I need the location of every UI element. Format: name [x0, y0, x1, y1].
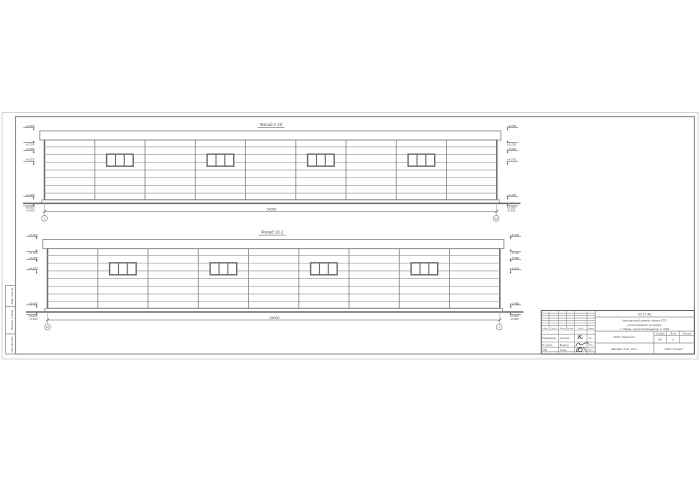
- svg-text:Дата: Дата: [587, 328, 594, 330]
- svg-text:3: 3: [672, 338, 674, 342]
- svg-text:10: 10: [46, 325, 50, 329]
- svg-text:07-17-АС: 07-17-АС: [638, 313, 653, 317]
- svg-text:Подпись и дата: Подпись и дата: [10, 310, 14, 331]
- svg-text:-0.450: -0.450: [26, 209, 35, 213]
- svg-text:06.17: 06.17: [588, 345, 594, 347]
- svg-text:ГИП: ГИП: [543, 350, 548, 352]
- svg-text:Стадия: Стадия: [656, 333, 666, 336]
- svg-text:АС: АС: [657, 338, 663, 342]
- svg-text:Кол.уч: Кол.уч: [551, 328, 558, 330]
- svg-text:Березин: Березин: [560, 345, 570, 347]
- svg-text:+5.720: +5.720: [28, 251, 37, 255]
- svg-text:Сизов: Сизов: [560, 350, 567, 352]
- svg-text:-0.450: -0.450: [510, 317, 519, 321]
- svg-text:54000: 54000: [270, 316, 280, 320]
- svg-text:ООО "Акрополь": ООО "Акрополь": [613, 335, 636, 339]
- svg-text:+5.720: +5.720: [510, 251, 519, 255]
- svg-text:г. Пермь, шоссе Космонавтов, д: г. Пермь, шоссе Космонавтов, д. 316А: [620, 327, 669, 331]
- svg-text:Подп.: Подп.: [578, 327, 584, 330]
- svg-text:Антонов: Антонов: [559, 337, 571, 340]
- svg-text:Н. контр.: Н. контр.: [543, 345, 554, 347]
- svg-text:Листов: Листов: [682, 333, 692, 336]
- svg-text:06.17: 06.17: [588, 350, 594, 352]
- svg-text:Разработал: Разработал: [543, 338, 557, 340]
- svg-text:+5.720: +5.720: [507, 143, 516, 147]
- svg-text:Лист: Лист: [559, 328, 566, 330]
- svg-text:10: 10: [495, 217, 499, 221]
- svg-text:Изм: Изм: [543, 328, 547, 330]
- svg-text:Фасады 1-10, 10-1.: Фасады 1-10, 10-1.: [611, 347, 638, 351]
- svg-text:расположенного по адресу:: расположенного по адресу:: [626, 323, 662, 327]
- svg-text:-0.450: -0.450: [29, 317, 38, 321]
- svg-text:№ док.: № док.: [567, 327, 574, 330]
- svg-text:Фасад 10-1: Фасад 10-1: [261, 230, 284, 235]
- svg-text:Фасад 1-10: Фасад 1-10: [260, 122, 283, 127]
- svg-text:Лист: Лист: [669, 333, 676, 336]
- svg-text:54000: 54000: [267, 208, 277, 212]
- svg-text:Капитальный ремонт здания СТО,: Капитальный ремонт здания СТО,: [622, 318, 667, 322]
- svg-text:Инв. № подл.: Инв. № подл.: [10, 335, 14, 352]
- svg-text:Взам. инв. №: Взам. инв. №: [10, 288, 14, 305]
- svg-text:+5.720: +5.720: [25, 143, 34, 147]
- svg-text:ООО "Альянс": ООО "Альянс": [664, 347, 684, 351]
- svg-text:06.17: 06.17: [588, 338, 594, 340]
- svg-text:-0.450: -0.450: [507, 209, 516, 213]
